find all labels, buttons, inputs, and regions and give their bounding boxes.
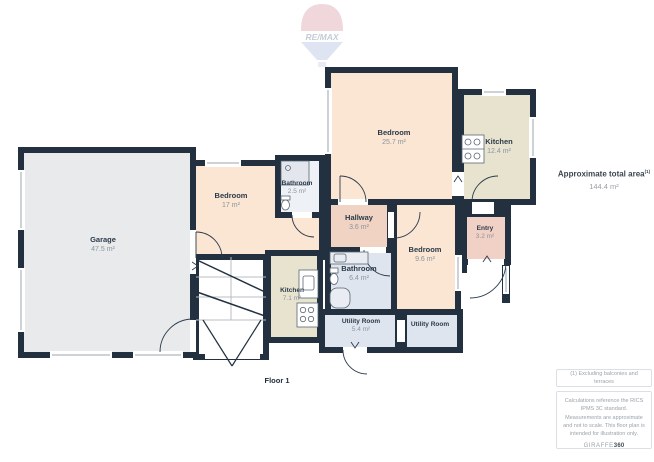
remax-wordmark: RE/MAX — [305, 32, 339, 42]
toilet-icon — [281, 196, 290, 200]
footnote-marker: (1) — [645, 169, 651, 174]
floorplan-page: RE/MAX — [0, 0, 654, 462]
stove-icon — [462, 135, 484, 163]
room-label-kitchen-71: Kitchen 7.1 m² — [280, 287, 304, 303]
footnote-box: (1) Excluding balconies and terraces — [556, 369, 652, 387]
room-label-bedroom-96: Bedroom 9.6 m² — [409, 246, 442, 264]
rooms-layer — [21, 70, 533, 357]
room-label-garage: Garage 47.5 m² — [90, 236, 116, 254]
room-label-entry: Entry 3.2 m² — [476, 225, 494, 241]
giraffe360-logo: GIRAFFE360 — [562, 442, 646, 451]
room-label-bathroom-25: Bathroom 2.5 m² — [282, 180, 313, 196]
room-label-bedroom-257: Bedroom 25.7 m² — [378, 129, 411, 147]
room-utility-2 — [404, 312, 460, 350]
room-label-bathroom-64: Bathroom 6.4 m² — [341, 265, 376, 283]
floor-label: Floor 1 — [264, 376, 289, 385]
bathtub-icon — [330, 288, 350, 308]
room-label-utility-2: Utility Room — [411, 321, 449, 329]
total-area-title: Approximate total area(1) — [558, 169, 650, 179]
footnote-text: (1) Excluding balconies and terraces — [560, 370, 648, 387]
room-label-utility-54: Utility Room 5.4 m² — [342, 318, 380, 334]
remax-balloon-logo: RE/MAX — [301, 4, 343, 67]
disclaimer-text: Calculations reference the RICS IPMS 3C … — [562, 397, 646, 438]
disclaimer-box: Calculations reference the RICS IPMS 3C … — [556, 391, 652, 449]
room-label-hallway: Hallway 3.6 m² — [345, 214, 373, 232]
toilet-icon — [330, 268, 338, 273]
room-label-bedroom-17: Bedroom 17 m² — [215, 192, 248, 210]
stove-icon — [297, 303, 318, 327]
total-area-value: 144.4 m² — [589, 182, 619, 191]
room-label-kitchen-124: Kitchen 12.4 m² — [485, 138, 513, 156]
